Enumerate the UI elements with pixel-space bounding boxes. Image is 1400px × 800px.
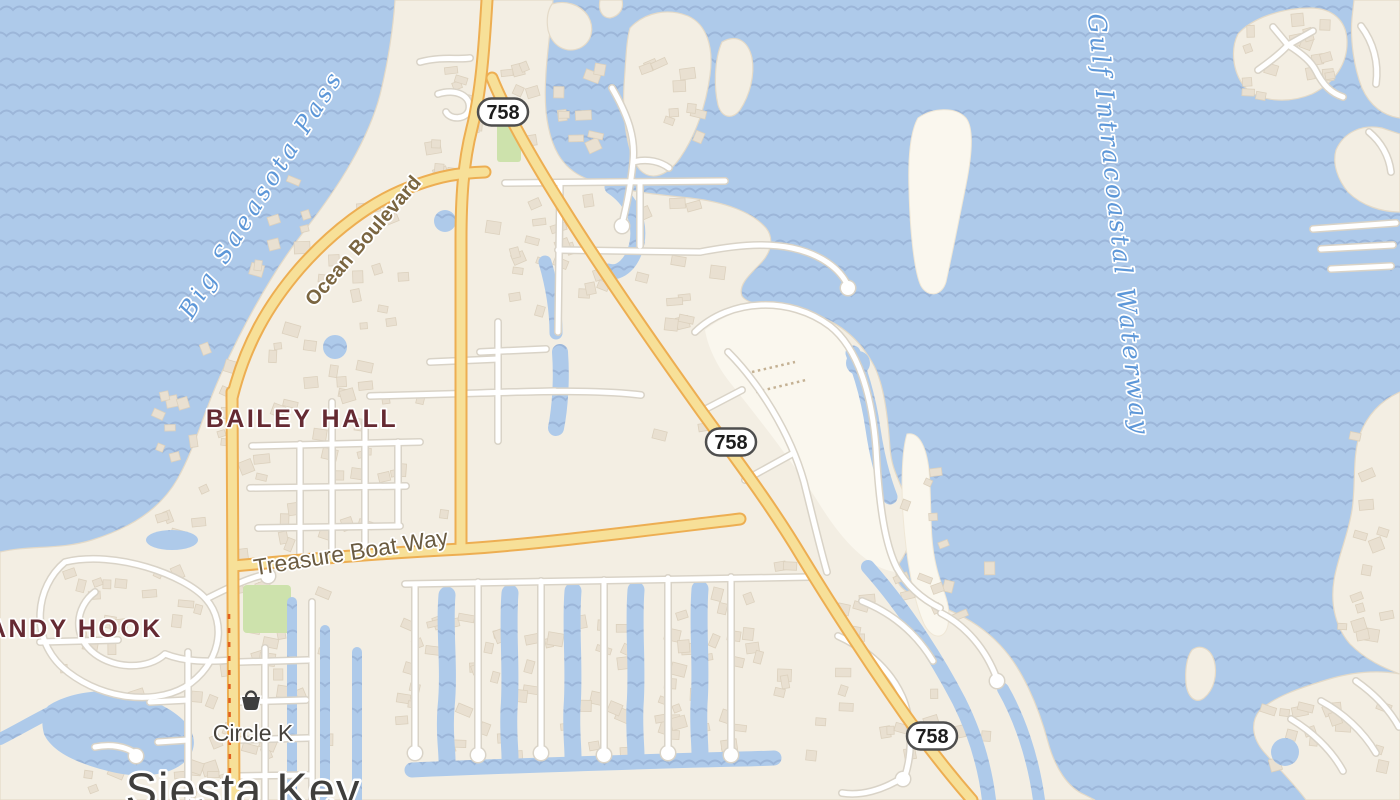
park [243, 585, 291, 633]
route-shield-758-top: 758 [478, 99, 528, 126]
poi-label-circle-k: Circle K [213, 720, 294, 746]
svg-text:758: 758 [714, 432, 747, 454]
map-canvas[interactable]: Big Saeasota Pass Gulf Intracoastal Wate… [0, 0, 1400, 800]
map-viewport[interactable]: Big Saeasota Pass Gulf Intracoastal Wate… [0, 0, 1400, 800]
svg-text:758: 758 [915, 726, 948, 748]
neighborhood-label-bailey-hall: BAILEY HALL [206, 405, 398, 433]
route-shield-758-bottom: 758 [907, 723, 957, 750]
neighborhood-label-andy-hook: ANDY HOOK [0, 615, 163, 643]
route-shield-758-middle: 758 [706, 429, 756, 456]
svg-text:758: 758 [486, 102, 519, 124]
city-label-siesta-key: Siesta Key [126, 763, 361, 800]
